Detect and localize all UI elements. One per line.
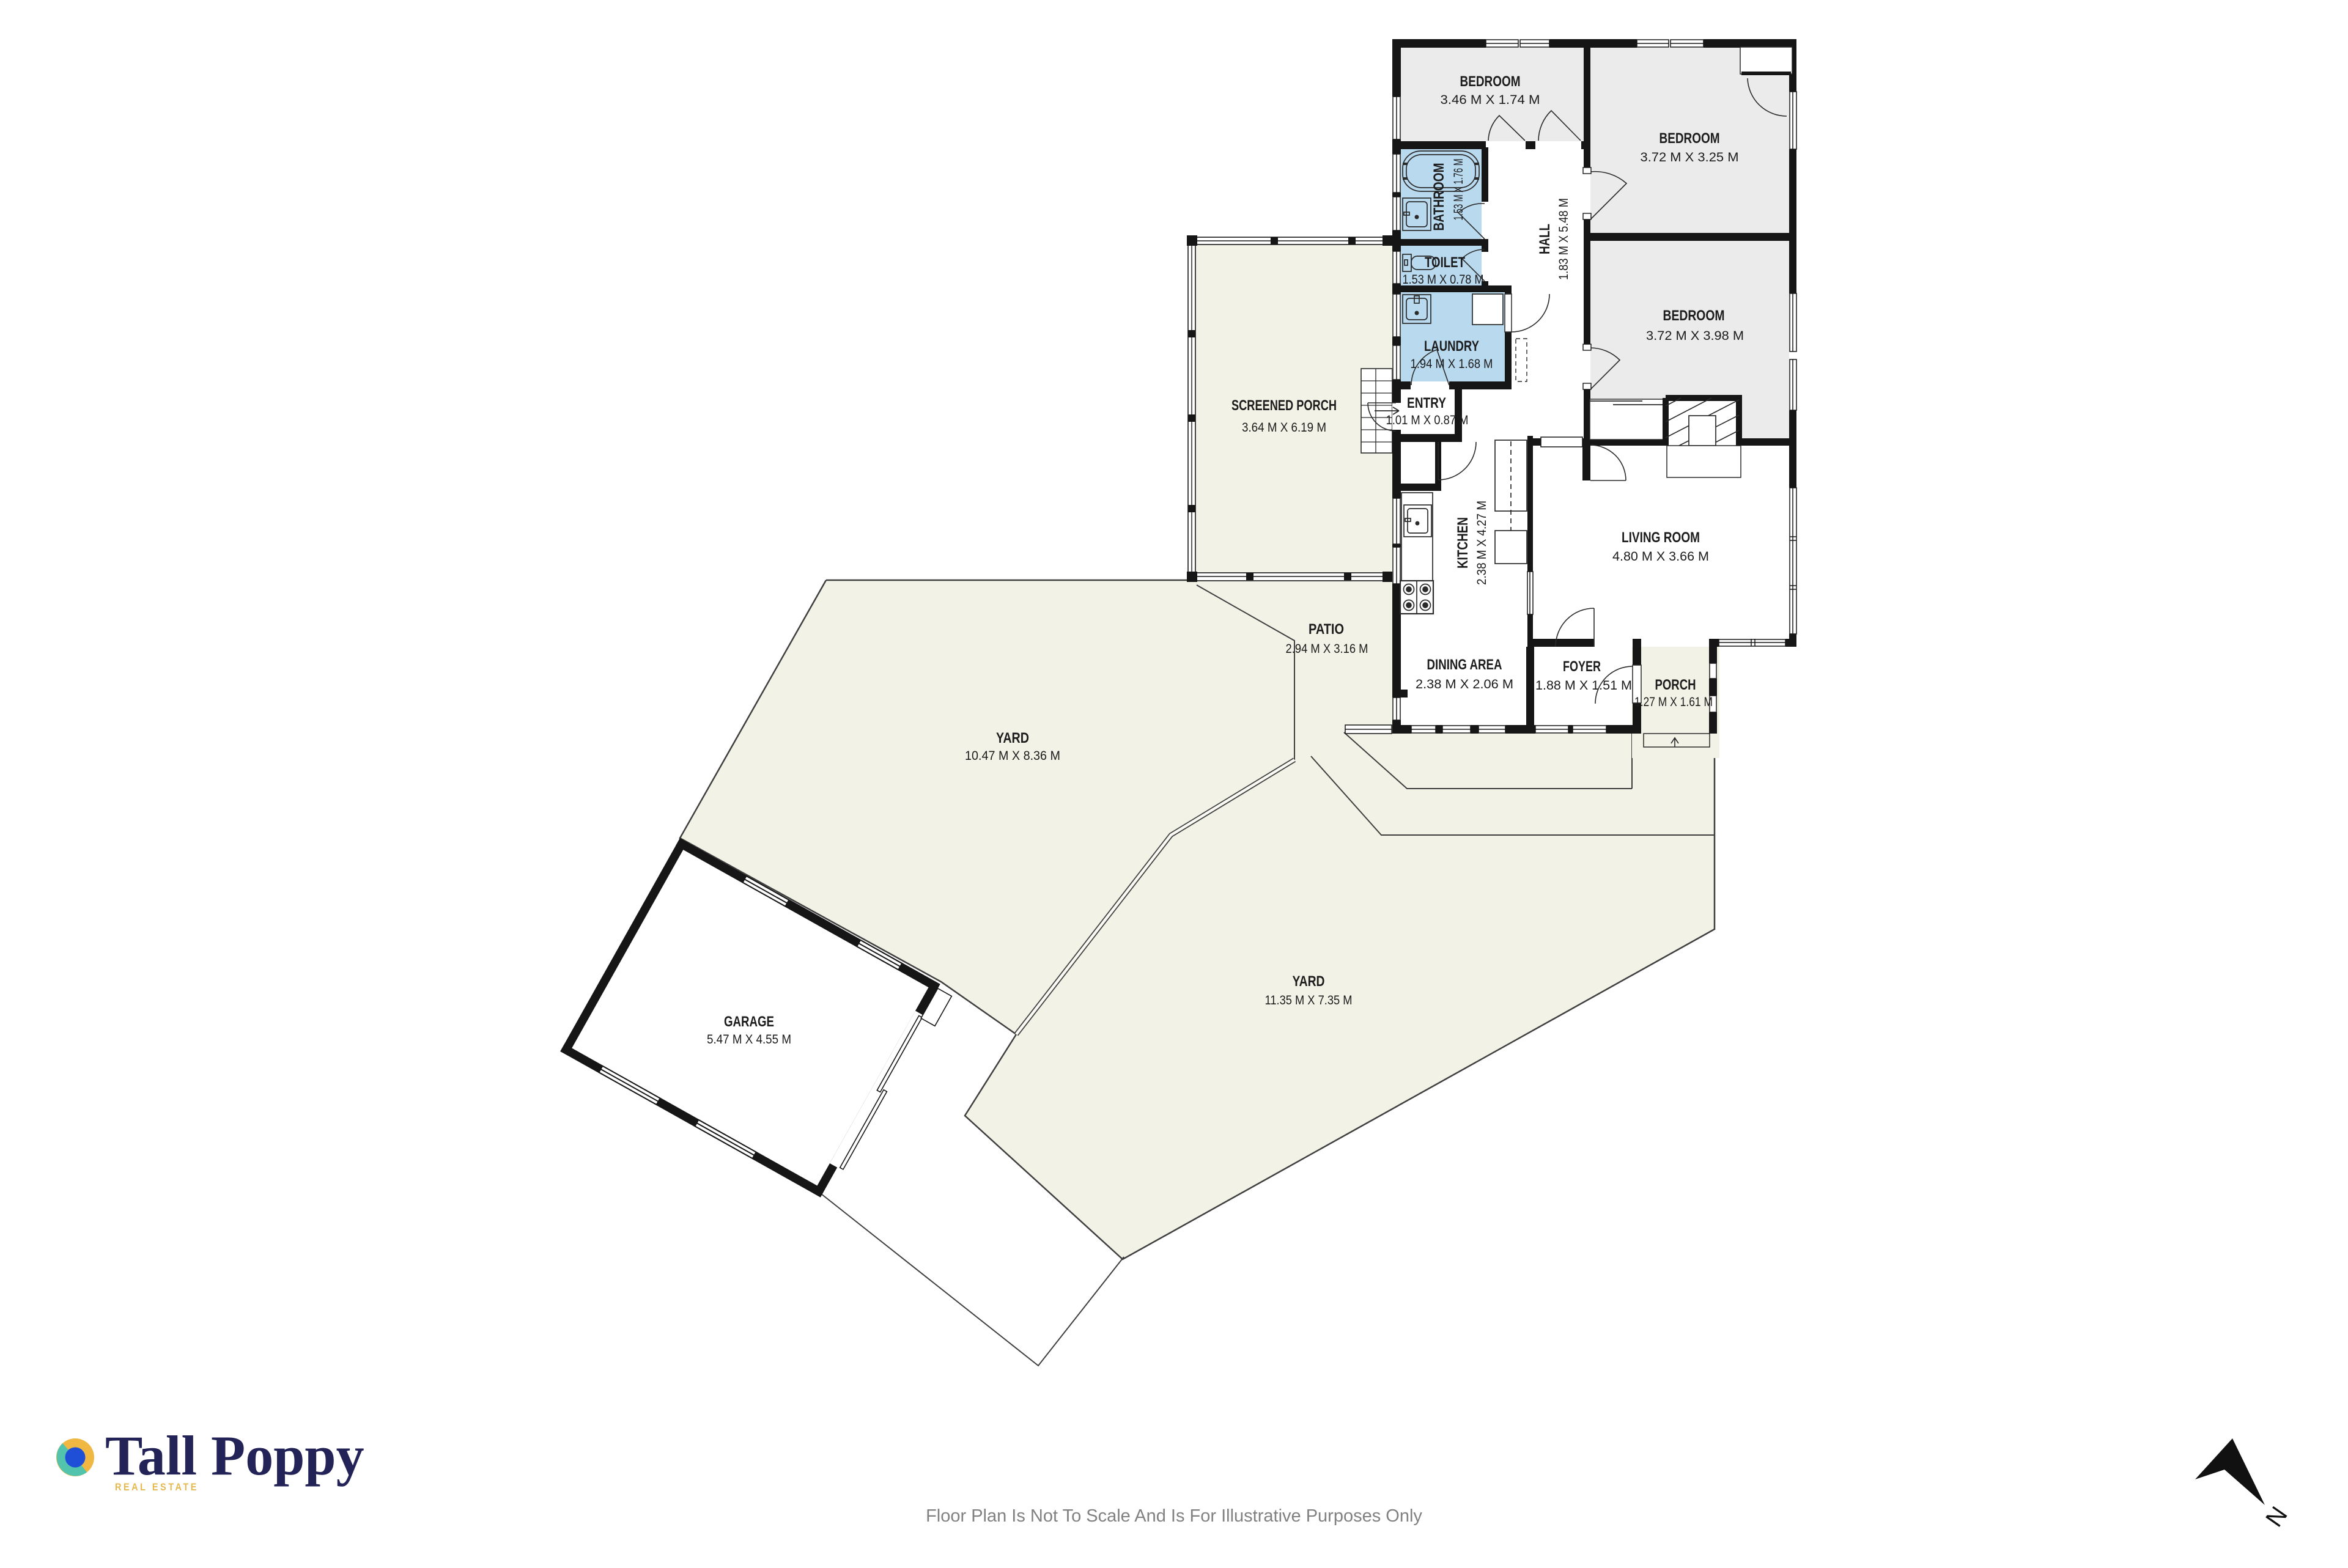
svg-text:PORCH: PORCH	[1655, 677, 1696, 693]
svg-text:PATIO: PATIO	[1309, 621, 1344, 638]
svg-text:3.64 M X 6.19 M: 3.64 M X 6.19 M	[1242, 420, 1326, 435]
svg-text:REAL ESTATE: REAL ESTATE	[115, 1482, 199, 1493]
svg-text:Tall Poppy: Tall Poppy	[105, 1424, 364, 1487]
svg-text:2.38 M X 4.27 M: 2.38 M X 4.27 M	[1474, 501, 1489, 585]
svg-text:1.83 M X 5.48 M: 1.83 M X 5.48 M	[1556, 198, 1571, 280]
svg-text:5.47 M X 4.55 M: 5.47 M X 4.55 M	[707, 1032, 791, 1047]
svg-text:GARAGE: GARAGE	[724, 1014, 774, 1030]
svg-text:1.53 M X 0.78 M: 1.53 M X 0.78 M	[1403, 272, 1484, 287]
svg-text:SCREENED PORCH: SCREENED PORCH	[1231, 397, 1337, 414]
svg-text:LIVING ROOM: LIVING ROOM	[1622, 529, 1700, 546]
svg-text:1.01 M X 0.87 M: 1.01 M X 0.87 M	[1386, 413, 1469, 427]
svg-text:10.47 M X 8.36 M: 10.47 M X 8.36 M	[965, 748, 1060, 763]
svg-text:YARD: YARD	[1293, 973, 1325, 990]
svg-text:1.27 M X 1.61 M: 1.27 M X 1.61 M	[1634, 694, 1713, 709]
svg-text:KITCHEN: KITCHEN	[1455, 517, 1471, 569]
svg-text:BEDROOM: BEDROOM	[1663, 307, 1725, 324]
svg-text:FOYER: FOYER	[1563, 658, 1601, 675]
svg-text:2.38 M X 2.06 M: 2.38 M X 2.06 M	[1416, 677, 1513, 691]
svg-text:BATHROOM: BATHROOM	[1431, 163, 1447, 231]
svg-text:ENTRY: ENTRY	[1407, 395, 1446, 411]
svg-text:DINING AREA: DINING AREA	[1427, 657, 1502, 673]
svg-text:3.72 M X 3.25 M: 3.72 M X 3.25 M	[1641, 150, 1739, 164]
svg-text:YARD: YARD	[996, 730, 1029, 746]
svg-text:1.53 M X 1.76 M: 1.53 M X 1.76 M	[1451, 159, 1466, 221]
svg-text:4.80 M X 3.66 M: 4.80 M X 3.66 M	[1612, 549, 1709, 564]
svg-text:11.35 M X 7.35 M: 11.35 M X 7.35 M	[1265, 993, 1353, 1007]
svg-text:BEDROOM: BEDROOM	[1460, 73, 1521, 90]
svg-text:Floor Plan Is Not To Scale And: Floor Plan Is Not To Scale And Is For Il…	[926, 1506, 1422, 1526]
svg-text:3.46 M X 1.74 M: 3.46 M X 1.74 M	[1441, 92, 1540, 107]
svg-text:LAUNDRY: LAUNDRY	[1424, 338, 1479, 355]
svg-text:1.88 M X 1.51 M: 1.88 M X 1.51 M	[1535, 678, 1632, 693]
svg-text:BEDROOM: BEDROOM	[1659, 130, 1720, 147]
svg-text:TOILET: TOILET	[1425, 254, 1465, 271]
svg-text:3.72 M X 3.98 M: 3.72 M X 3.98 M	[1646, 328, 1744, 343]
svg-text:HALL: HALL	[1537, 224, 1553, 254]
svg-text:1.94 M X 1.68 M: 1.94 M X 1.68 M	[1411, 356, 1493, 371]
svg-text:2.94 M X 3.16 M: 2.94 M X 3.16 M	[1286, 641, 1368, 656]
